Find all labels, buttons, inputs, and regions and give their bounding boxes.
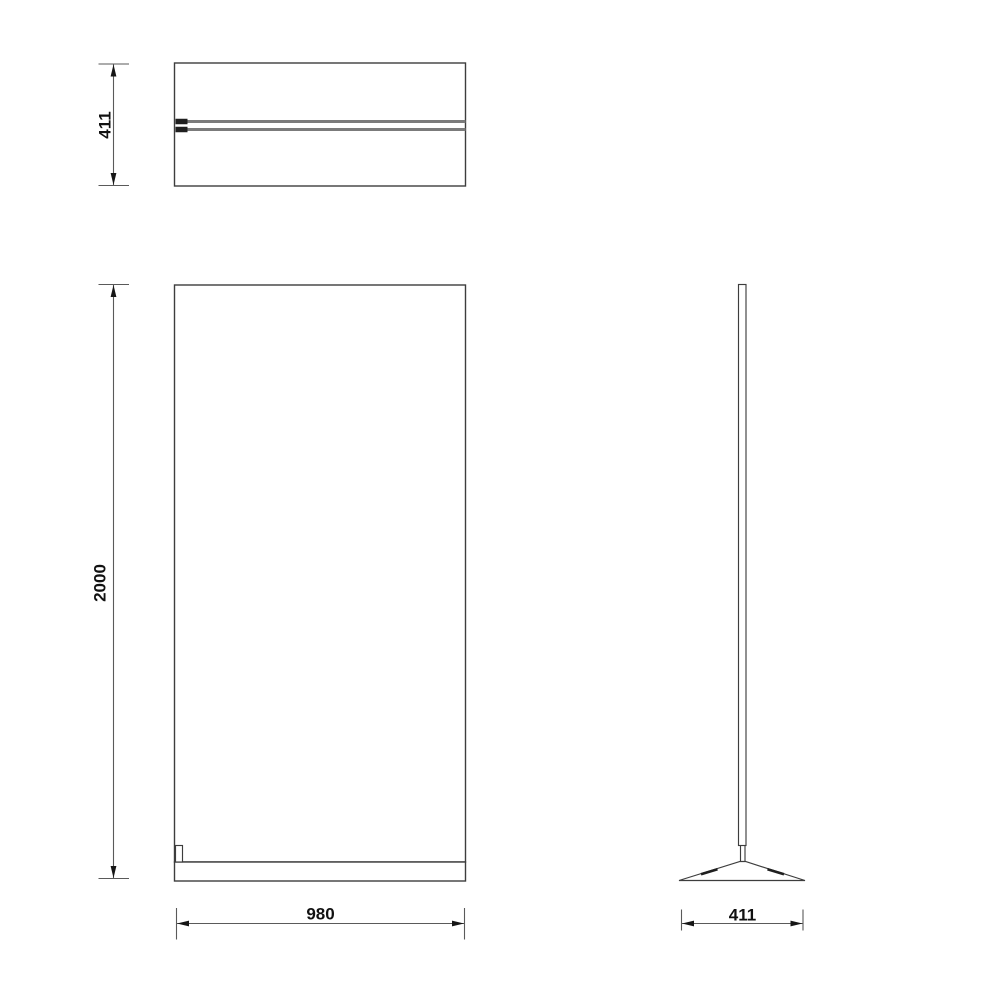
side-view	[679, 285, 805, 881]
top-view	[175, 63, 466, 186]
dim-label-height: 2000	[91, 564, 108, 602]
arrowhead-up-icon	[111, 65, 117, 77]
arrowhead-left-icon	[177, 921, 189, 927]
front-view-panel-outline	[175, 285, 466, 862]
top-view-base-outline	[175, 63, 466, 186]
technical-drawing-canvas: 411 2000 980 411	[0, 0, 1000, 1000]
side-view-splayed-foot	[679, 862, 805, 881]
arrowhead-up-icon	[111, 285, 117, 297]
arrowhead-down-icon	[111, 173, 117, 185]
arrowhead-right-icon	[452, 921, 464, 927]
front-view-base-rail	[175, 862, 466, 881]
dim-label-width: 980	[306, 905, 334, 922]
arrowhead-right-icon	[791, 921, 803, 927]
front-view	[175, 285, 466, 881]
drawing-linework	[0, 0, 1000, 1000]
dim-label-depth-top: 411	[96, 111, 113, 138]
arrowhead-down-icon	[111, 866, 117, 878]
arrowhead-left-icon	[682, 921, 694, 927]
dim-label-depth-base: 411	[729, 906, 756, 923]
side-view-panel-edge	[739, 285, 747, 846]
front-view-foot-bracket	[176, 846, 183, 863]
